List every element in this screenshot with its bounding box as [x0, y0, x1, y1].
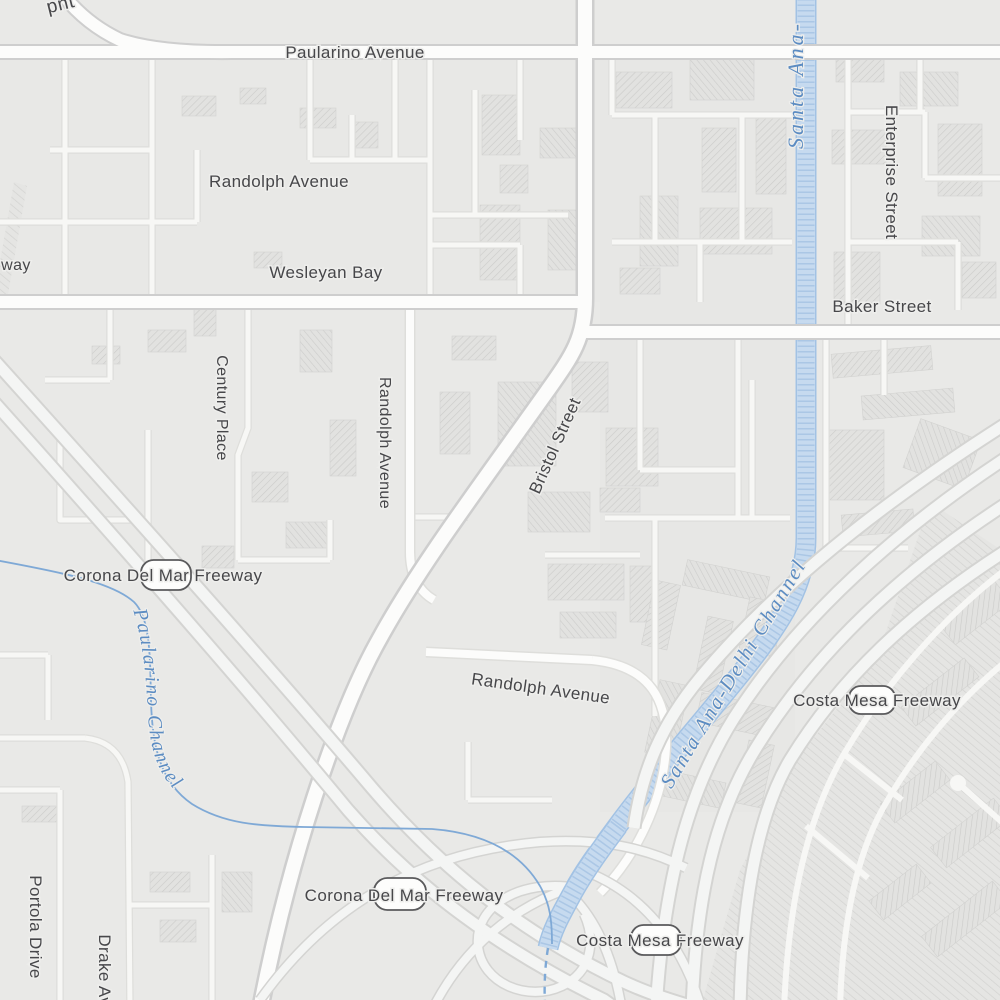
- wesleyan-bay-label: Wesleyan Bay: [269, 263, 382, 282]
- map-canvas[interactable]: Paularino AvenueRandolph AvenueWesleyan …: [0, 0, 1000, 1000]
- randolph-avenue-vertical-label: Randolph Avenue: [376, 377, 393, 509]
- drake-avenue-label: Drake Avenue: [95, 934, 114, 1000]
- costa-mesa-freeway-south-label: Costa Mesa Freeway: [576, 931, 744, 950]
- randolph-avenue-upper-label: Randolph Avenue: [209, 172, 349, 191]
- baker-street-label: Baker Street: [832, 297, 931, 316]
- century-place-label: Century Place: [213, 355, 230, 461]
- enterprise-street-label: Enterprise Street: [882, 105, 901, 239]
- corona-del-mar-freeway-lower-label: Corona Del Mar Freeway: [305, 886, 504, 905]
- costa-mesa-freeway-east-label: Costa Mesa Freeway: [793, 691, 961, 710]
- map-svg: Paularino AvenueRandolph AvenueWesleyan …: [0, 0, 1000, 1000]
- santa-ana-partial-label: Santa Ana-: [783, 21, 808, 149]
- paularino-avenue-label: Paularino Avenue: [285, 43, 424, 62]
- way-partial-label: way: [0, 257, 31, 274]
- portola-drive-label: Portola Drive: [26, 875, 45, 978]
- cul-de-sac: [950, 775, 966, 791]
- corona-del-mar-freeway-upper-label: Corona Del Mar Freeway: [64, 566, 263, 585]
